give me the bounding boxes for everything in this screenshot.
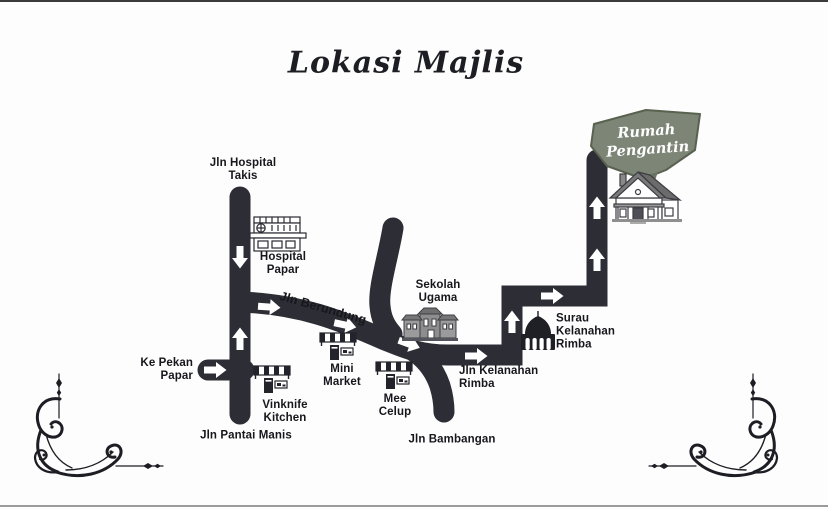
label-jln-pantai-manis: Jln Pantai Manis [200,430,292,443]
label-rumah-pengantin: Rumah Pengantin [604,120,689,162]
label-vinknife-kitchen: Vinknife Kitchen [262,399,307,425]
roads [208,160,597,414]
corner-flourish-right [649,374,777,476]
label-ke-pekan-papar: Ke Pekan Papar [140,357,193,383]
label-mini-market: Mini Market [323,363,361,389]
label-mee-celup: Mee Celup [379,393,411,419]
house-icon [610,172,682,224]
label-jln-bambangan: Jln Bambangan [409,434,496,447]
shop-awning-icon-vinknife [254,366,290,393]
label-hospital-papar: Hospital Papar [260,251,306,277]
label-surau-kelanahan-rimba: Surau Kelanahan Rimba [556,313,615,352]
label-jln-kelanahan-rimba: Jln Kelanahan Rimba [459,365,538,391]
label-jln-hospital-takis: Jln Hospital Takis [210,157,276,183]
corner-flourish-left [35,374,163,476]
label-sekolah-ugama: Sekolah Ugama [416,279,461,305]
school-building-icon [402,308,458,341]
mosque-icon [521,302,555,350]
road-top-branch [380,228,393,334]
hospital-building-icon [250,217,306,251]
map-page: Lokasi Majlis [0,0,828,510]
shop-awning-icon-mee-celup [376,362,412,389]
shop-awning-icon-mini-market [320,333,356,360]
